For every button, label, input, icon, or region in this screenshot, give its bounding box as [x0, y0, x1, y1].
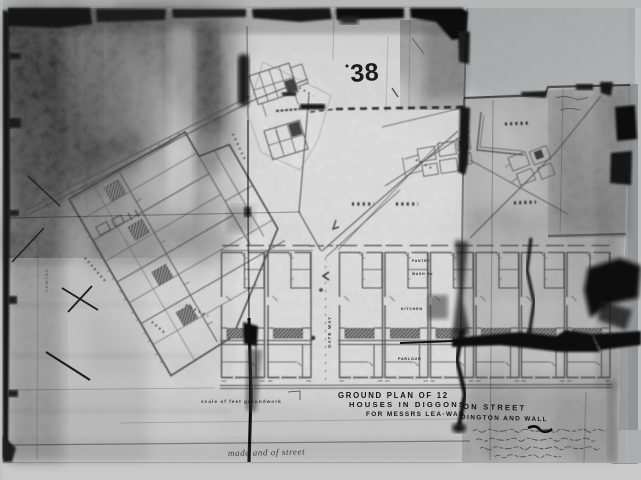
svg-text:HOUSES IN DIGGONS: HOUSES IN DIGGONS — [349, 400, 466, 409]
svg-text:NEWTON: NEWTON — [44, 268, 49, 292]
svg-text:FOR MESSRS LEA-WAD: FOR MESSRS LEA-WAD — [366, 411, 465, 418]
svg-text:PANTRY: PANTRY — [412, 259, 430, 263]
svg-text:GATE WAY: GATE WAY — [327, 316, 332, 348]
svg-text:PARLOUR: PARLOUR — [398, 357, 421, 361]
svg-text:KITCHEN: KITCHEN — [401, 307, 423, 311]
svg-text:scale of feet groundwork: scale of feet groundwork — [201, 399, 282, 405]
svg-text:GROUND PLAN OF 12: GROUND PLAN OF 12 — [338, 391, 449, 400]
svg-text:made and of street: made and of street — [228, 447, 305, 458]
svg-text:WASH Ho: WASH Ho — [412, 272, 433, 276]
svg-text:38: 38 — [349, 58, 380, 88]
svg-text:ON STREET: ON STREET — [463, 402, 526, 413]
